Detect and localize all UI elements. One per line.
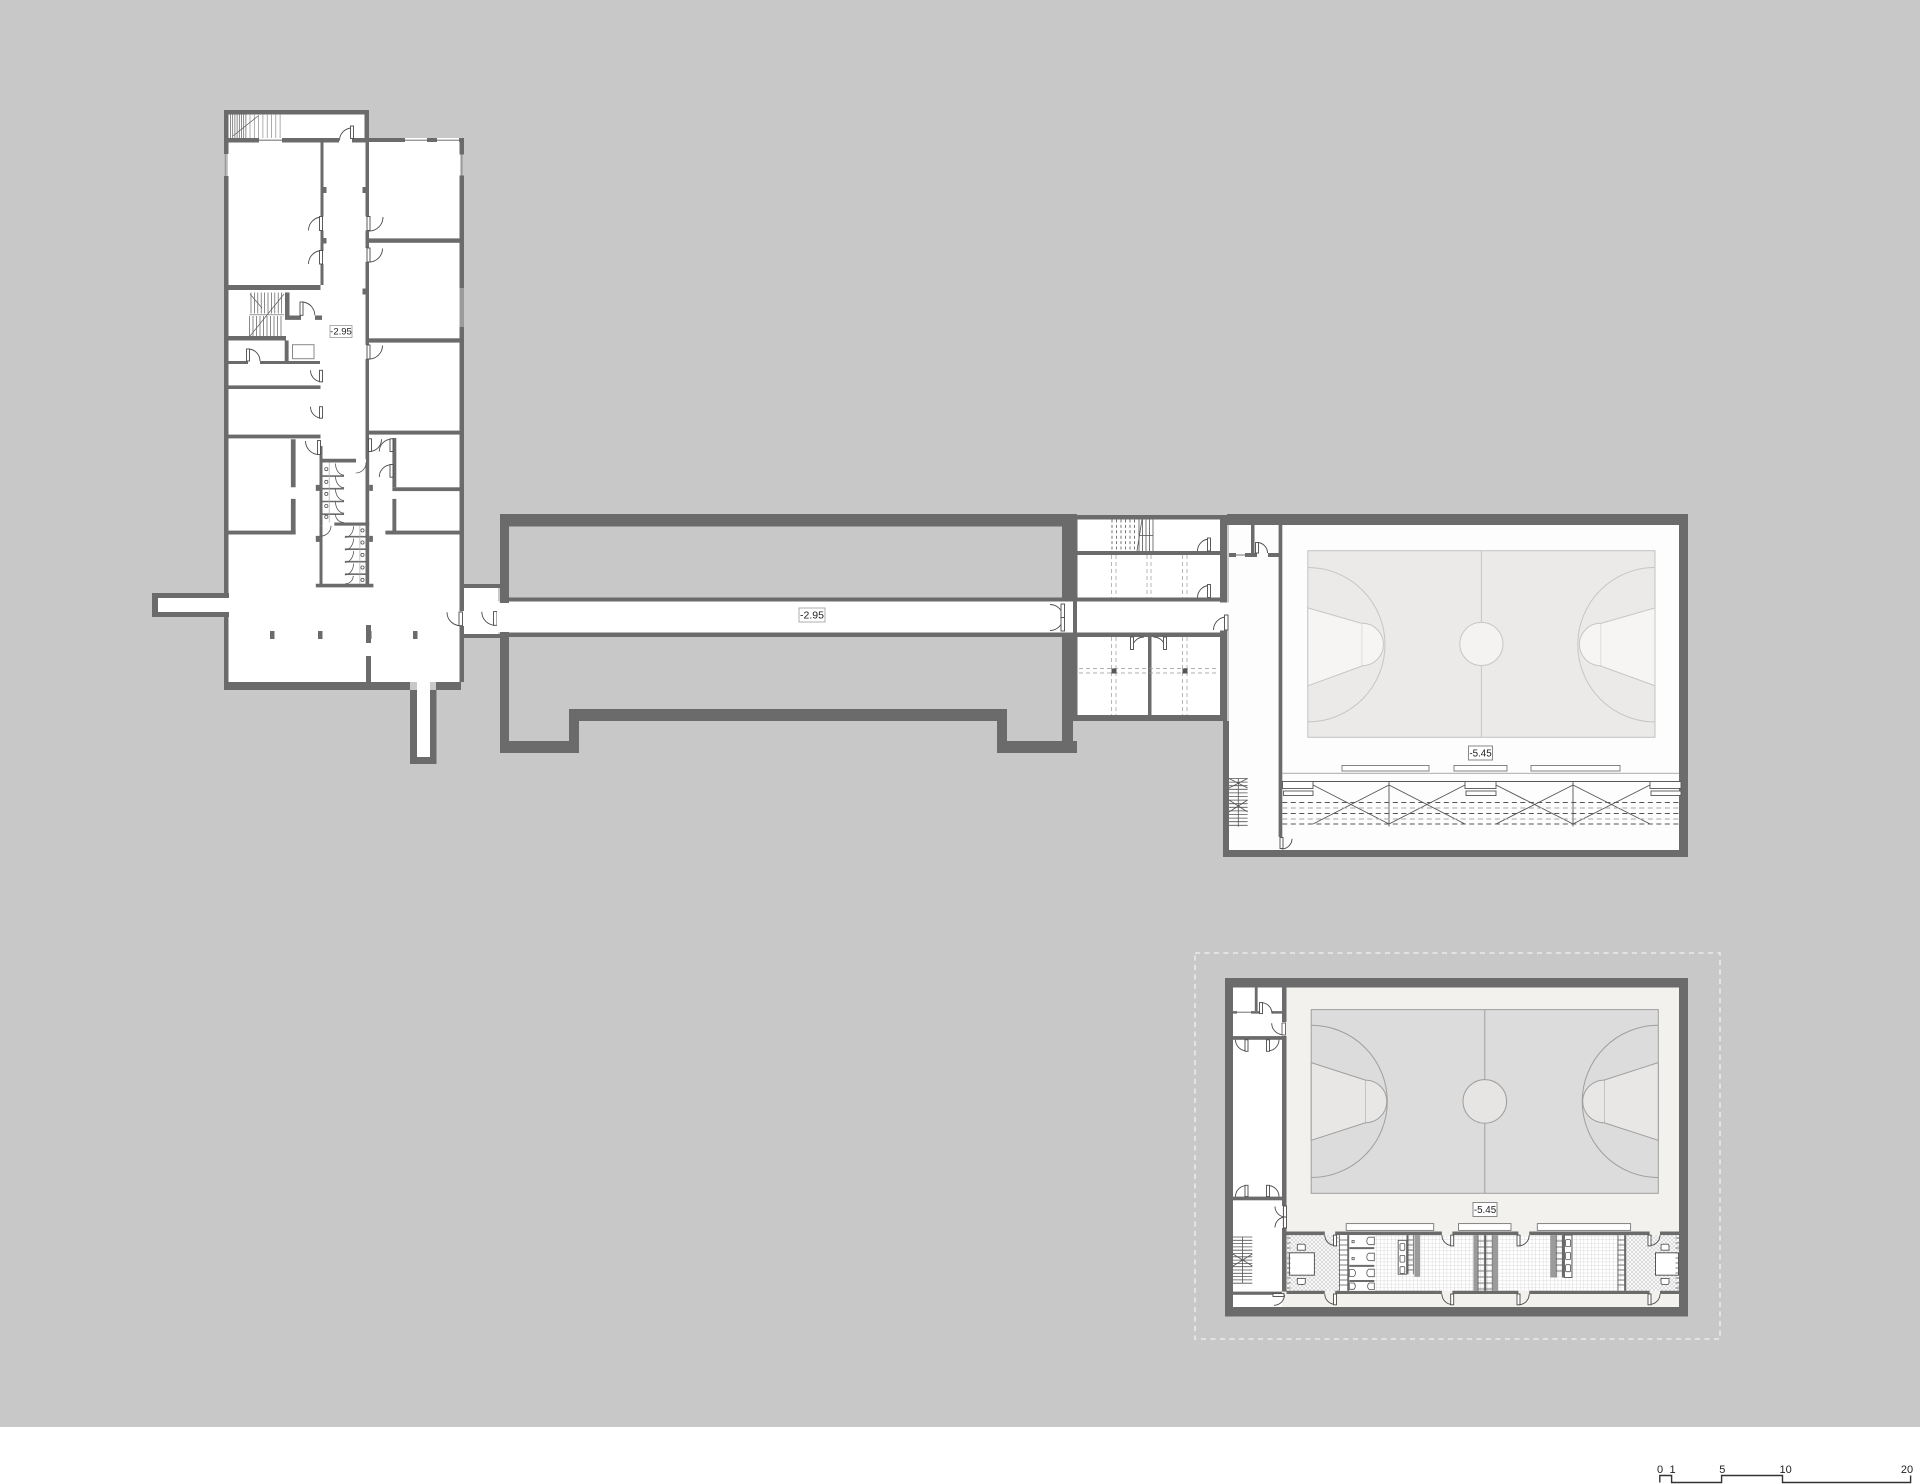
svg-text:-5.45: -5.45	[1469, 749, 1492, 760]
svg-text:20: 20	[1901, 1464, 1913, 1476]
svg-text:0: 0	[1657, 1464, 1663, 1476]
svg-text:-2.95: -2.95	[330, 327, 352, 338]
svg-text:10: 10	[1779, 1464, 1791, 1476]
svg-text:-2.95: -2.95	[800, 610, 824, 622]
svg-text:-5.45: -5.45	[1474, 1205, 1497, 1216]
svg-text:1: 1	[1670, 1464, 1676, 1476]
svg-text:5: 5	[1719, 1464, 1725, 1476]
